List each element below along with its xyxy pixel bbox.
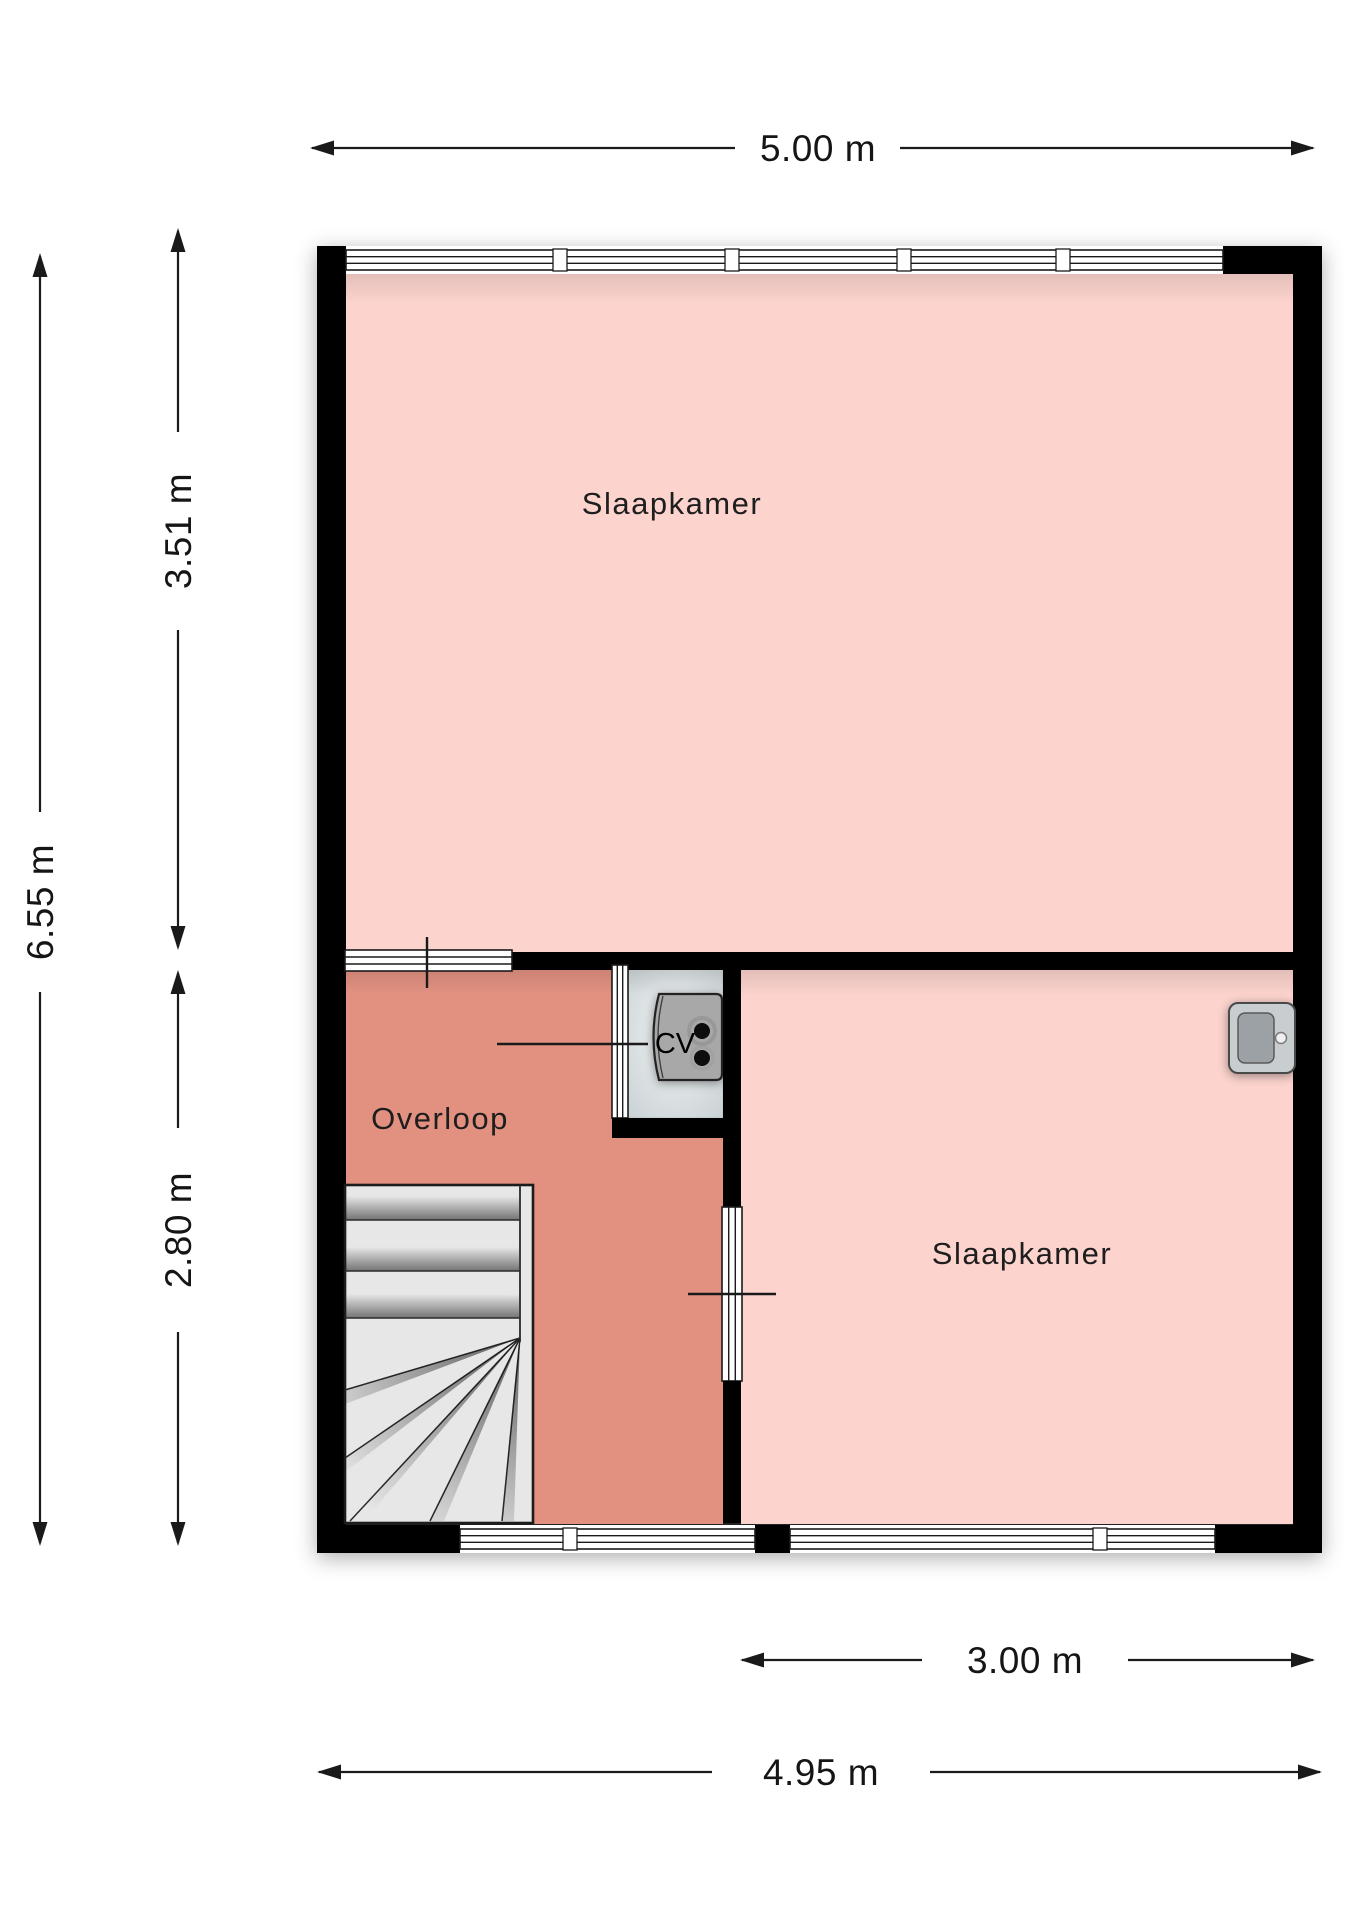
bedroom-right-shade (741, 970, 1294, 996)
wall-right (1293, 246, 1322, 1553)
dimension-bottom-width: 4.95 m (317, 1752, 1322, 1793)
arrowhead-up-icon (33, 253, 48, 277)
dimension-label-upper-height: 3.51 m (158, 473, 199, 589)
arrowhead-down-icon (33, 1522, 48, 1546)
floorplan-page: CV (0, 0, 1358, 1920)
arrowhead-up-icon (171, 970, 186, 994)
cv-burner-icon (694, 1023, 710, 1039)
window-top (346, 246, 1223, 274)
wall-left (317, 246, 346, 1553)
window-mullion (725, 249, 739, 271)
dimension-label-bottom-width: 4.95 m (763, 1752, 879, 1793)
window-top-glass (346, 250, 1223, 270)
dimension-room-width: 3.00 m (740, 1640, 1315, 1681)
window-glass (460, 1529, 755, 1549)
dimension-label-total-height: 6.55 m (20, 844, 61, 960)
dimension-label-top-width: 5.00 m (760, 128, 876, 169)
window-bottom-right (790, 1525, 1215, 1553)
dimension-label-lower-height: 2.80 m (158, 1172, 199, 1288)
sink-faucet-icon (1276, 1033, 1287, 1044)
cv-label: CV (655, 1028, 696, 1060)
window-mullion (897, 249, 911, 271)
wall-top-left-stub (317, 246, 346, 274)
cv-closet-bottom-wall (612, 1118, 741, 1138)
arrowhead-left-icon (317, 1765, 341, 1780)
room-label-bedroom-top: Slaapkamer (582, 486, 762, 521)
landing-shade (345, 970, 723, 994)
arrowhead-left-icon (310, 141, 334, 156)
room-label-bedroom-right: Slaapkamer (932, 1236, 1112, 1271)
arrowhead-down-icon (171, 926, 186, 950)
tread-shadow (346, 1196, 519, 1220)
dimension-lower-height: 2.80 m (158, 970, 199, 1546)
bedroom-top-shade (345, 273, 1294, 303)
sink-basin (1238, 1013, 1274, 1063)
dimension-top-width: 5.00 m (310, 128, 1315, 169)
staircase (345, 1185, 533, 1523)
window-mullion (563, 1528, 577, 1550)
wall-bottom-right (1215, 1525, 1322, 1553)
dimension-total-height: 6.55 m (20, 253, 61, 1546)
interior-wall-lower (723, 1381, 741, 1523)
cv-closet-right-wall (723, 952, 741, 1207)
tread-shadow (346, 1247, 519, 1271)
arrowhead-up-icon (171, 228, 186, 252)
wall-bottom-left (317, 1525, 460, 1553)
sink (1229, 1003, 1295, 1073)
window-bottom-left (460, 1525, 755, 1553)
room-label-landing: Overloop (371, 1101, 509, 1136)
wall-top-right-stub (1223, 246, 1322, 274)
bedroom-top-floor (345, 273, 1294, 953)
divider-interior-window (345, 950, 512, 971)
window-mullion (1056, 249, 1070, 271)
dimension-label-room-width: 3.00 m (967, 1640, 1083, 1681)
window-glass (790, 1529, 1215, 1549)
arrowhead-right-icon (1291, 141, 1315, 156)
arrowhead-left-icon (740, 1653, 764, 1668)
arrowhead-down-icon (171, 1522, 186, 1546)
wall-bottom-mid-stub (755, 1525, 790, 1553)
floorplan-drawing: CV (0, 0, 1358, 1920)
cv-closet-glass-wall (612, 965, 628, 1118)
window-mullion (1093, 1528, 1107, 1550)
arrowhead-right-icon (1291, 1653, 1315, 1668)
tread-shadow (346, 1294, 519, 1318)
cv-burner-icon (694, 1050, 710, 1066)
window-mullion (553, 249, 567, 271)
dimension-upper-height: 3.51 m (158, 228, 199, 950)
arrowhead-right-icon (1298, 1765, 1322, 1780)
plan: CV (317, 246, 1322, 1553)
